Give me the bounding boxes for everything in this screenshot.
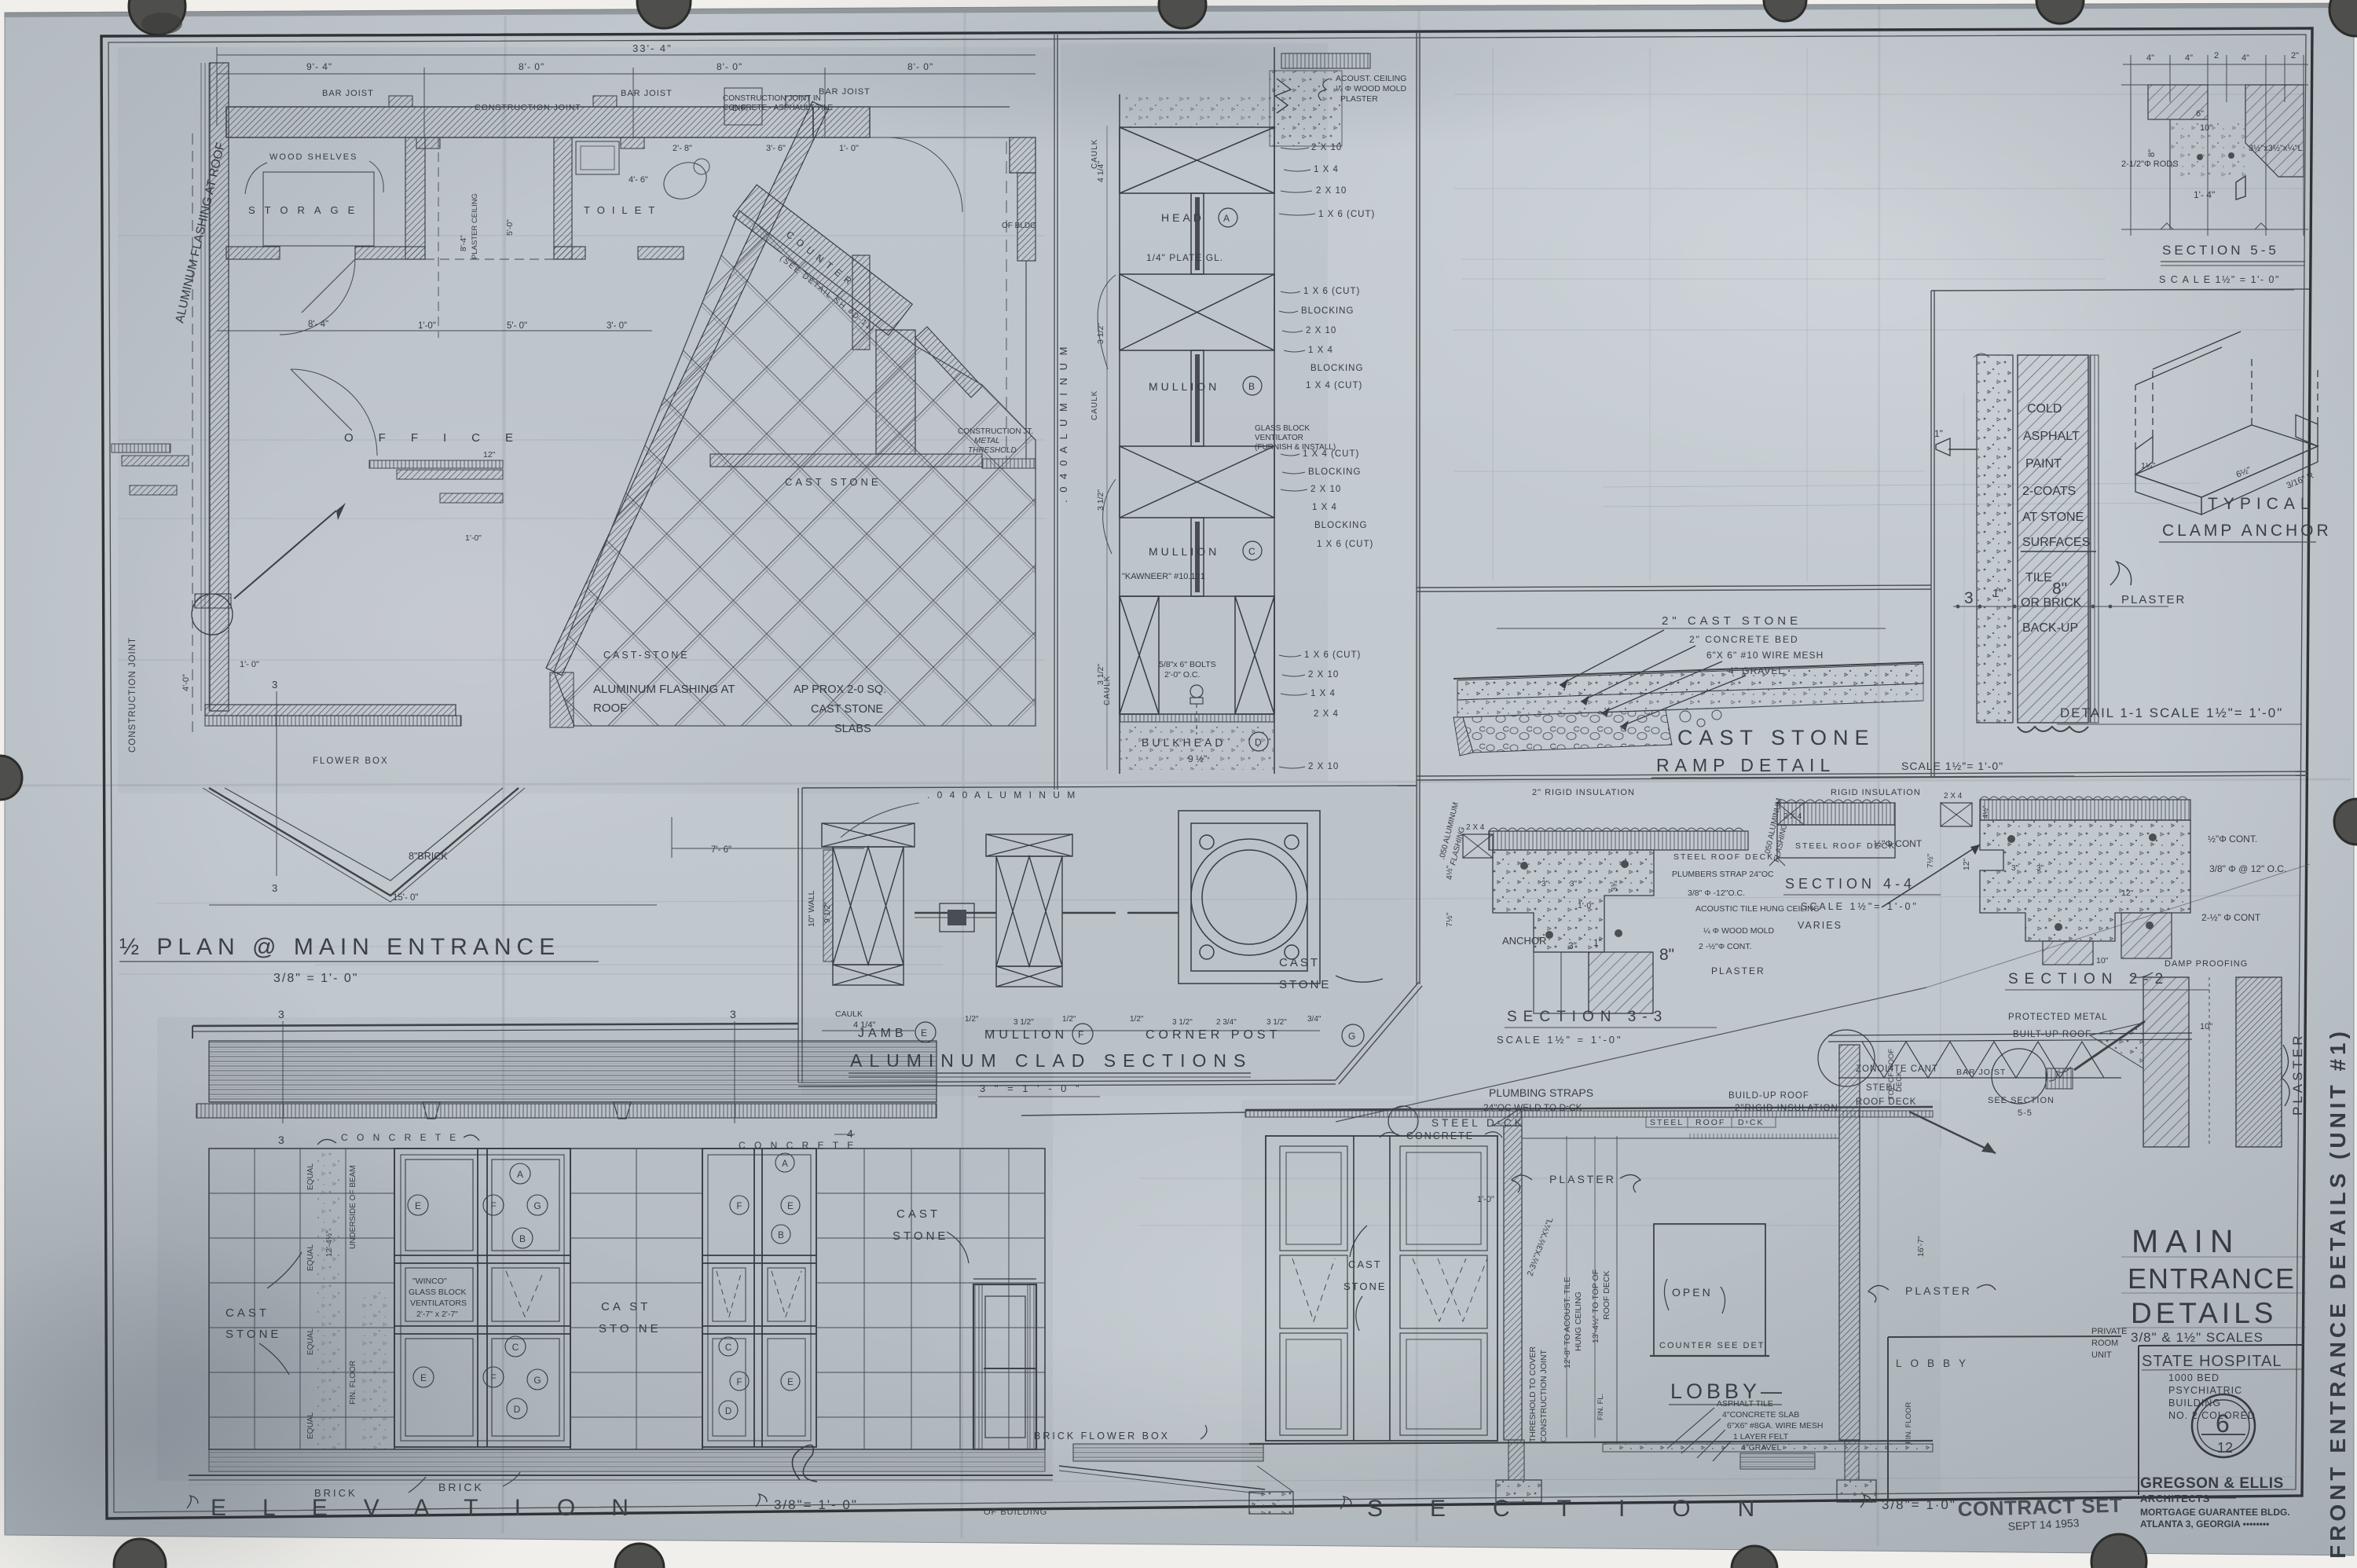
svg-text:BUILT-UP ROOF: BUILT-UP ROOF — [2013, 1030, 2091, 1039]
svg-text:7½": 7½" — [1926, 853, 1935, 868]
svg-text:5-5: 5-5 — [2018, 1108, 2033, 1118]
svg-text:BUILD-UP ROOF: BUILD-UP ROOF — [1728, 1091, 1809, 1101]
svg-text:CAST STONE: CAST STONE — [1677, 726, 1875, 749]
svg-text:12": 12" — [1962, 858, 1971, 870]
svg-text:RAMP DETAIL: RAMP DETAIL — [1656, 755, 1835, 775]
svg-text:2 -½"Φ CONT.: 2 -½"Φ CONT. — [1699, 942, 1752, 951]
svg-text:2" RIGID INSULATION: 2" RIGID INSULATION — [1532, 788, 1635, 797]
svg-text:OF BUILDING: OF BUILDING — [984, 1508, 1047, 1517]
svg-text:3": 3" — [1570, 880, 1578, 888]
svg-text:S C A L E 1½" = 1'- 0": S C A L E 1½" = 1'- 0" — [2159, 274, 2280, 285]
svg-text:PROTECTED METAL: PROTECTED METAL — [2008, 1013, 2108, 1022]
svg-text:SECTION 4-4: SECTION 4-4 — [1785, 876, 1915, 892]
svg-text:PRIVATE: PRIVATE — [2091, 1327, 2127, 1336]
svg-text:6: 6 — [2216, 1409, 2230, 1438]
svg-text:4": 4" — [2242, 53, 2249, 63]
svg-text:TILE: TILE — [2025, 571, 2052, 584]
svg-text:3": 3" — [1541, 880, 1549, 888]
svg-text:12": 12" — [2121, 888, 2134, 898]
svg-text:1": 1" — [1992, 587, 2003, 600]
svg-text:ANCHOR: ANCHOR — [1502, 935, 1546, 947]
svg-text:BAR JOIST: BAR JOIST — [1956, 1068, 2006, 1077]
svg-text:PSYCHIATRIC: PSYCHIATRIC — [2168, 1385, 2242, 1396]
svg-text:4½": 4½" — [1981, 805, 1990, 819]
svg-text:2 X 4: 2 X 4 — [1466, 823, 1485, 832]
svg-text:8": 8" — [2052, 580, 2067, 598]
svg-text:2 X 4: 2 X 4 — [1783, 812, 1802, 821]
svg-text:COLD: COLD — [2027, 402, 2062, 416]
svg-text:BUILDING: BUILDING — [2168, 1398, 2221, 1409]
svg-text:½"Φ CONT.: ½"Φ CONT. — [2208, 833, 2257, 844]
svg-text:¼ Φ WOOD MOLD: ¼ Φ WOOD MOLD — [1703, 926, 1774, 936]
svg-text:2" CAST STONE: 2" CAST STONE — [1662, 614, 1802, 628]
svg-text:½ PLAN @ MAIN ENTRANCE: ½ PLAN @ MAIN ENTRANCE — [119, 934, 560, 960]
svg-text:10": 10" — [2200, 1022, 2212, 1031]
svg-text:―――: ――― — [2208, 1492, 2236, 1503]
svg-text:8": 8" — [2147, 149, 2157, 157]
svg-text:PLASTER: PLASTER — [1340, 94, 1378, 104]
svg-text:2 X 4: 2 X 4 — [1944, 792, 1963, 800]
svg-text:10": 10" — [2200, 123, 2212, 133]
svg-text:2-COATS: 2-COATS — [2022, 485, 2076, 498]
svg-text:4": 4" — [2146, 53, 2154, 63]
svg-text:3½"x3½"x¼"L: 3½"x3½"x¼"L — [2249, 144, 2303, 153]
svg-text:¼ Φ WOOD MOLD: ¼ Φ WOOD MOLD — [1336, 84, 1406, 93]
svg-text:SECTION 3-3: SECTION 3-3 — [1507, 1009, 1668, 1025]
svg-text:RIGID INSULATION: RIGID INSULATION — [1831, 788, 1921, 797]
svg-text:MAIN: MAIN — [2132, 1223, 2241, 1259]
svg-text:1": 1" — [1934, 428, 1943, 439]
svg-text:12: 12 — [2217, 1440, 2233, 1456]
svg-text:1'- 4": 1'- 4" — [2194, 189, 2215, 200]
svg-text:NO. 2 COLORED: NO. 2 COLORED — [2168, 1410, 2256, 1421]
svg-text:CONTRACT SET: CONTRACT SET — [1957, 1493, 2122, 1521]
svg-text:OR BRICK: OR BRICK — [2021, 596, 2082, 610]
svg-text:PLUMBING STRAPS: PLUMBING STRAPS — [1489, 1086, 1593, 1099]
svg-text:4½": 4½" — [1445, 865, 1454, 880]
svg-text:1'-0": 1'-0" — [1578, 901, 1594, 910]
svg-text:15'- 0": 15'- 0" — [393, 893, 419, 903]
svg-text:SCALE 1½" = 1'-0": SCALE 1½" = 1'-0" — [1497, 1034, 1623, 1046]
svg-text:PLUMBERS STRAP 24"OC: PLUMBERS STRAP 24"OC — [1672, 870, 1774, 879]
svg-text:STEEL ROOF DECK: STEEL ROOF DECK — [1673, 852, 1774, 862]
svg-text:BRICK FLOWER BOX: BRICK FLOWER BOX — [1034, 1431, 1170, 1442]
svg-text:SECTION 5-5: SECTION 5-5 — [2162, 243, 2279, 258]
svg-text:PAINT: PAINT — [2025, 457, 2062, 471]
svg-text:DETAILS: DETAILS — [2131, 1297, 2277, 1329]
svg-text:BRICK: BRICK — [438, 1481, 484, 1493]
svg-text:1¼": 1¼" — [2141, 461, 2156, 471]
svg-text:BACK-UP: BACK-UP — [2022, 621, 2078, 635]
svg-text:DETAIL 1-1 SCALE 1½"= 1'-0: DETAIL 1-1 SCALE 1½"= 1'-0" — [2060, 705, 2283, 720]
svg-text:ENTRANCE: ENTRANCE — [2128, 1262, 2296, 1295]
svg-text:PLASTER: PLASTER — [2290, 1033, 2305, 1116]
svg-text:ASPHALT: ASPHALT — [2023, 430, 2080, 443]
svg-text:2-½" Φ CONT: 2-½" Φ CONT — [2201, 912, 2261, 923]
svg-text:SURFACES: SURFACES — [2022, 536, 2090, 549]
svg-text:6"X 6" #10 WIRE MESH: 6"X 6" #10 WIRE MESH — [1706, 650, 1824, 661]
svg-text:SECTION: SECTION — [1367, 1496, 1802, 1522]
svg-text:½"Φ CONT: ½"Φ CONT — [1874, 838, 1923, 849]
svg-text:7'- 6": 7'- 6" — [711, 845, 731, 855]
svg-text:3/8" Φ @ 12" O.C.: 3/8" Φ @ 12" O.C. — [2209, 863, 2286, 874]
svg-text:3": 3" — [1568, 940, 1577, 951]
svg-text:UNIT: UNIT — [2091, 1350, 2112, 1360]
svg-text:TYPICAL: TYPICAL — [2208, 495, 2315, 513]
svg-text:AT STONE: AT STONE — [2022, 511, 2084, 524]
svg-text:10": 10" — [2096, 956, 2109, 965]
svg-text:3¾: 3¾ — [1611, 880, 1619, 892]
svg-text:2": 2" — [2291, 51, 2299, 60]
svg-text:PLASTER: PLASTER — [2121, 593, 2186, 606]
svg-text:DAMP PROOFING: DAMP PROOFING — [2165, 959, 2248, 969]
svg-text:3/8"= 1·0": 3/8"= 1·0" — [1882, 1497, 1956, 1512]
svg-text:ACOUSTIC TILE HUNG CEILING: ACOUSTIC TILE HUNG CEILING — [1695, 904, 1820, 914]
svg-text:SCALE 1½"= 1'-0": SCALE 1½"= 1'-0" — [1901, 760, 2003, 772]
svg-text:ELEVATION: ELEVATION — [211, 1495, 665, 1521]
svg-text:3: 3 — [272, 882, 277, 894]
svg-text:1": 1" — [1593, 937, 1602, 948]
svg-text:3: 3 — [1964, 589, 1974, 607]
svg-text:SEE SECTION: SEE SECTION — [1988, 1096, 2055, 1105]
svg-text:2: 2 — [2214, 51, 2219, 60]
svg-text:4": 4" — [2185, 53, 2193, 63]
svg-text:3": 3" — [2036, 864, 2044, 873]
svg-text:PLASTER: PLASTER — [1711, 965, 1765, 976]
svg-text:8"BRICK: 8"BRICK — [409, 851, 448, 862]
svg-text:2" CONCRETE BED: 2" CONCRETE BED — [1689, 634, 1799, 645]
svg-text:ARCHITECTS: ARCHITECTS — [2140, 1493, 2210, 1504]
svg-text:3/8" Φ -12"O.C.: 3/8" Φ -12"O.C. — [1688, 888, 1745, 898]
svg-text:VARIES: VARIES — [1798, 920, 1842, 931]
svg-text:3": 3" — [2011, 864, 2019, 873]
svg-text:STATE HOSPITAL: STATE HOSPITAL — [2142, 1353, 2282, 1370]
svg-text:3/8" & 1½" SCALES: 3/8" & 1½" SCALES — [2131, 1330, 2264, 1345]
svg-text:8": 8" — [1659, 946, 1674, 964]
svg-text:ATLANTA 3, GEORGIA ••••••••: ATLANTA 3, GEORGIA •••••••• — [2140, 1519, 2269, 1530]
svg-text:MORTGAGE GUARANTEE BLDG.: MORTGAGE GUARANTEE BLDG. — [2140, 1507, 2290, 1518]
svg-text:CLAMP ANCHOR: CLAMP ANCHOR — [2162, 522, 2332, 540]
svg-text:2-1/2"Φ RODS: 2-1/2"Φ RODS — [2121, 159, 2179, 169]
svg-text:6": 6" — [2196, 109, 2204, 119]
svg-text:ROOM: ROOM — [2091, 1339, 2118, 1348]
svg-text:ACOUST. CEILING: ACOUST. CEILING — [1336, 74, 1406, 83]
svg-text:3/8"= 1'- 0": 3/8"= 1'- 0" — [774, 1497, 858, 1512]
svg-text:GREGSON & ELLIS: GREGSON & ELLIS — [2140, 1475, 2284, 1492]
svg-text:7½": 7½" — [1445, 912, 1454, 927]
svg-text:FRONT ENTRANCE DETAILS (UNI: FRONT ENTRANCE DETAILS (UNIT #1) — [2326, 1028, 2350, 1559]
svg-text:3/8" = 1'- 0": 3/8" = 1'- 0" — [273, 972, 358, 985]
svg-text:DECK: DECK — [1895, 1071, 1904, 1092]
svg-text:1000 BED: 1000 BED — [2168, 1372, 2220, 1383]
